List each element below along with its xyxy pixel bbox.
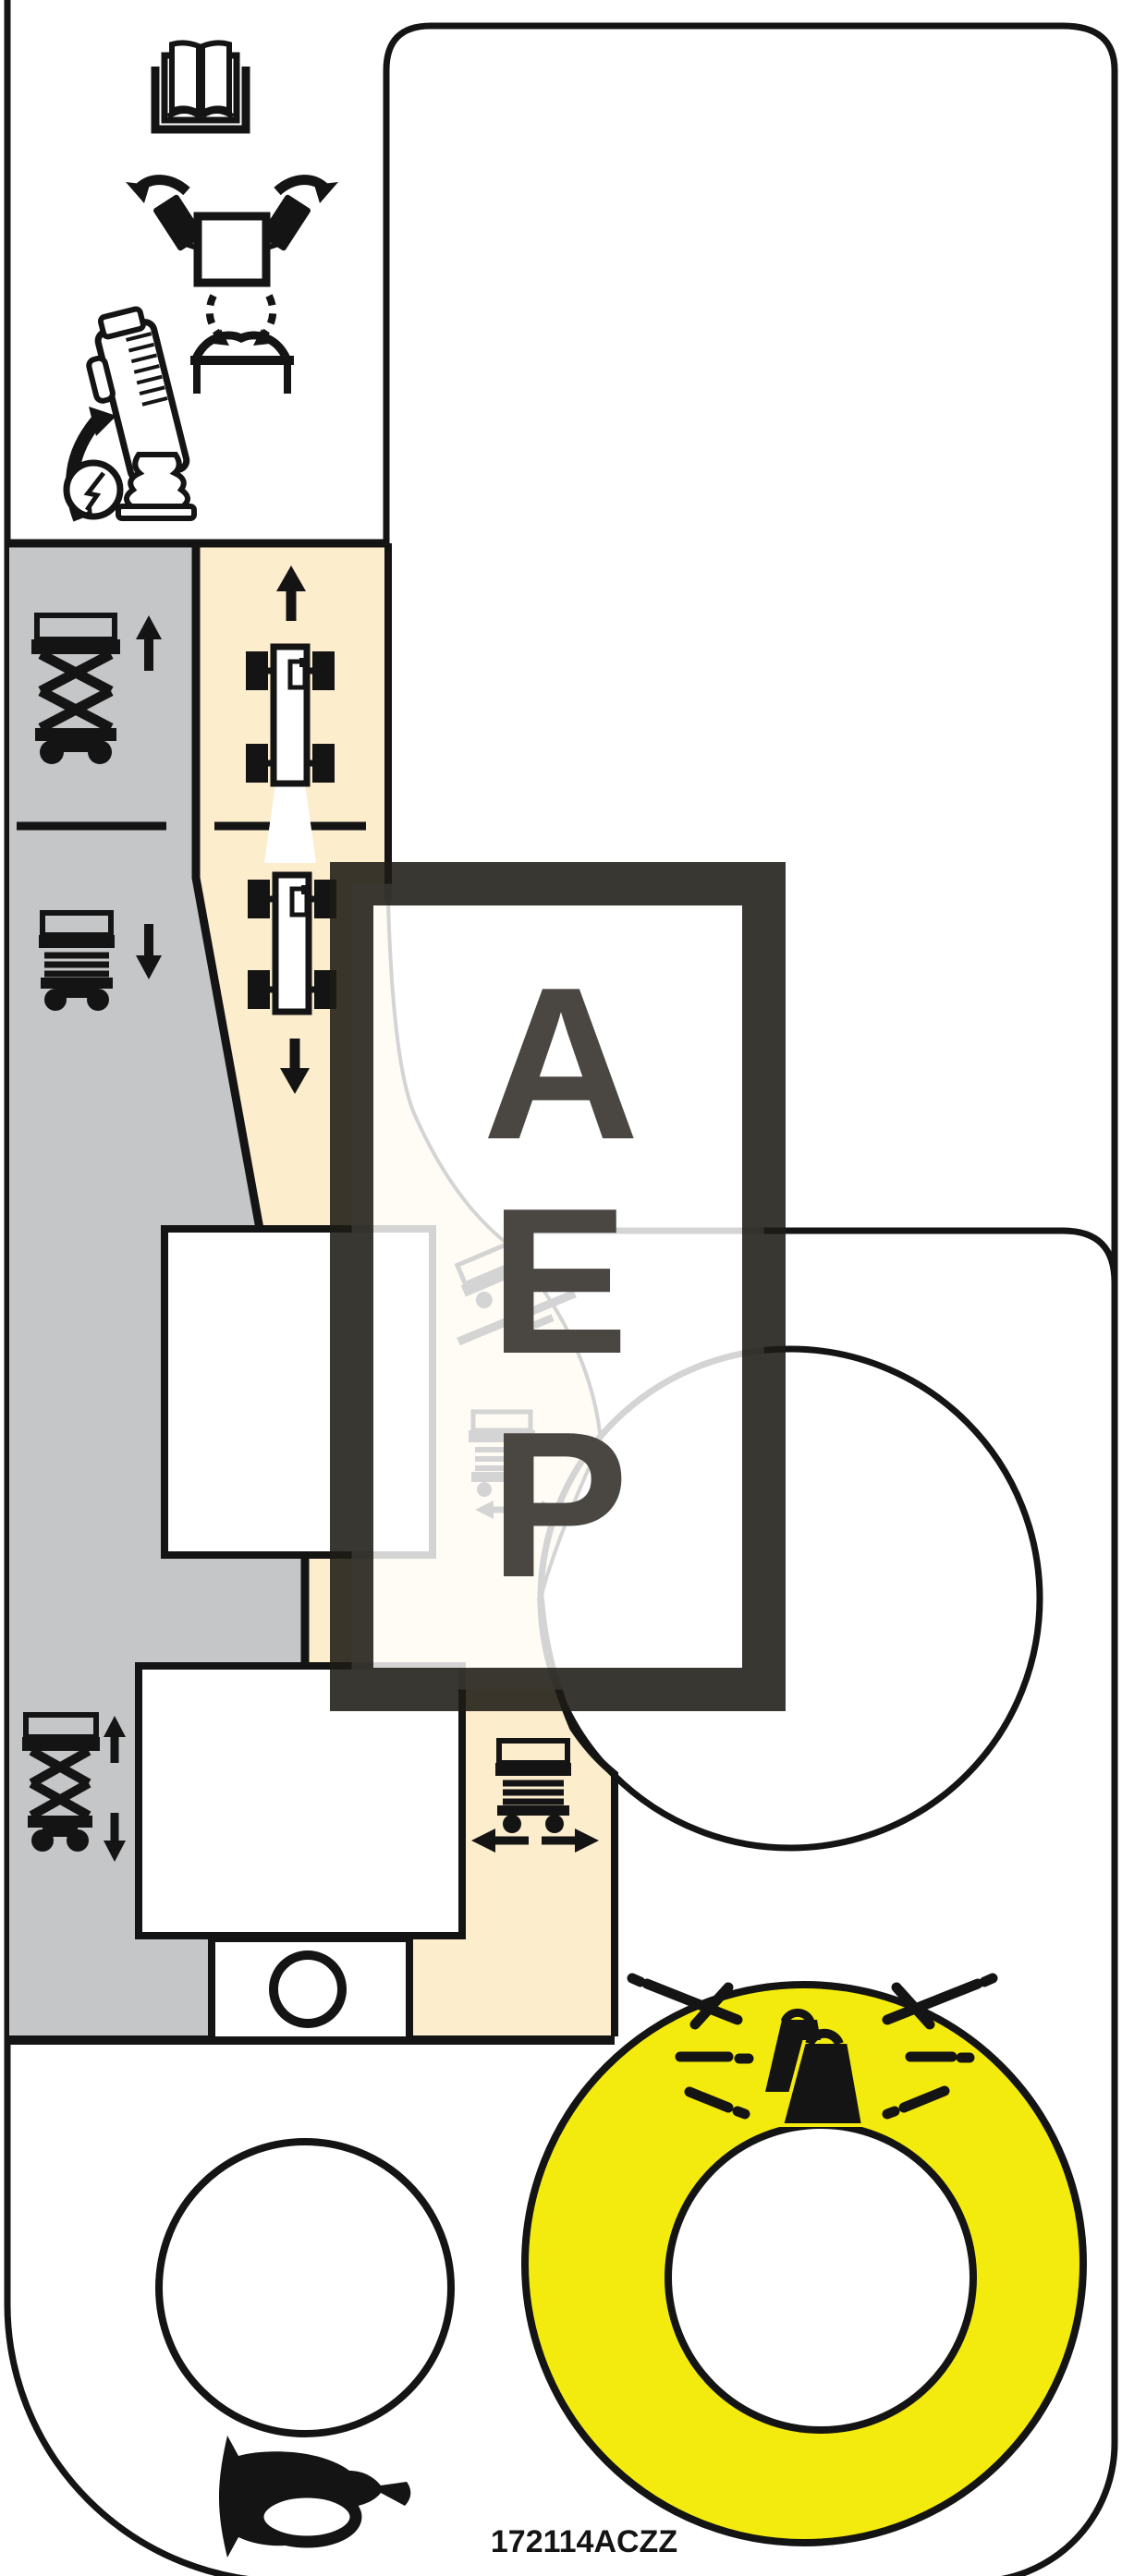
- horn-icon: [219, 2436, 410, 2558]
- manual-book-icon: [155, 43, 246, 129]
- part-number: 172114ACZZ: [491, 2524, 677, 2559]
- control-panel-decal: A E P 172114ACZZ: [0, 0, 1122, 2576]
- overlay-letter-e: E: [490, 1164, 628, 1397]
- overlay-letter-p: P: [490, 1388, 628, 1621]
- overlay-letter-a: A: [482, 942, 640, 1185]
- platform-seat-icon: [190, 296, 294, 394]
- small-button-circle: [274, 1955, 342, 2023]
- steering-wheels-icon: [126, 180, 338, 283]
- horn-button-circle: [159, 2142, 451, 2434]
- aep-overlay: A E P: [352, 884, 764, 1690]
- electric-hazard-icon: [67, 463, 120, 516]
- overload-ring-hole: [668, 2125, 973, 2430]
- overload-indicator: [525, 1978, 1083, 2543]
